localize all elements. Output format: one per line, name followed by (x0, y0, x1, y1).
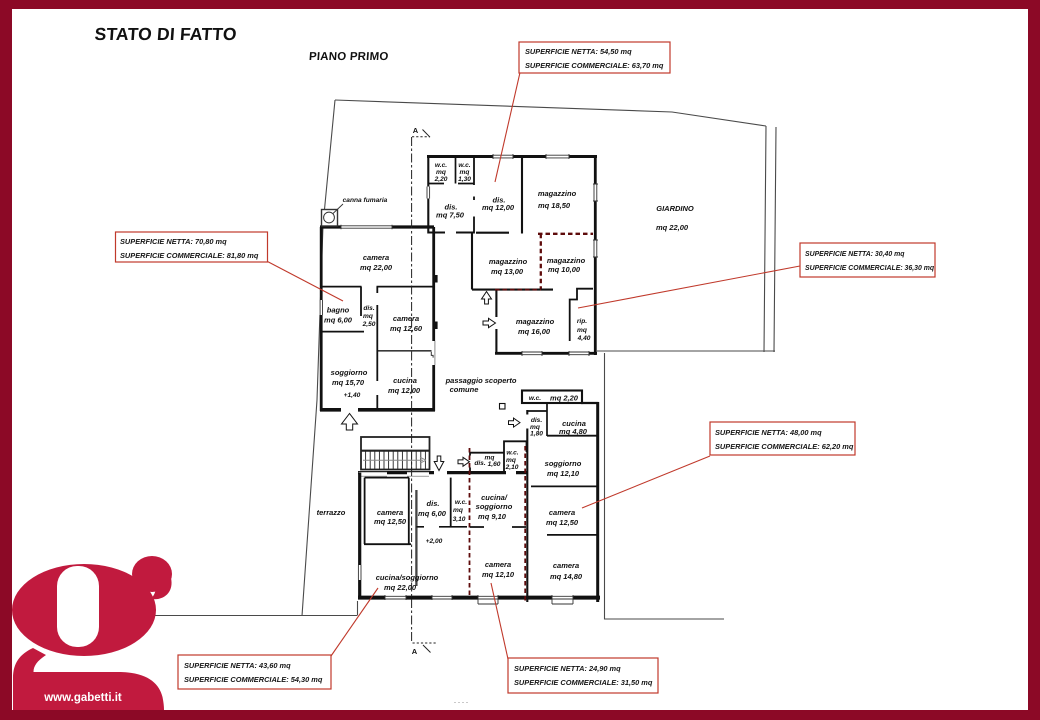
svg-text:mq 6,00: mq 6,00 (324, 316, 353, 325)
svg-text:mq 12,00: mq 12,00 (388, 386, 421, 395)
svg-text:www.gabetti.it: www.gabetti.it (43, 692, 122, 704)
svg-text:+1,40: +1,40 (344, 392, 361, 399)
svg-text:camera: camera (553, 561, 579, 570)
svg-text:mq: mq (577, 327, 587, 334)
svg-text:mq: mq (436, 169, 446, 176)
svg-text:w.c.: w.c. (506, 450, 518, 457)
svg-text:camera: camera (377, 508, 403, 517)
svg-text:2,50: 2,50 (362, 321, 376, 328)
svg-text:mq 16,00: mq 16,00 (518, 327, 551, 336)
svg-text:mq 12,60: mq 12,60 (390, 324, 423, 333)
svg-text:A: A (413, 126, 419, 135)
svg-text:soggiorno: soggiorno (331, 368, 368, 377)
svg-text:2,10: 2,10 (505, 464, 519, 471)
svg-text:2,20: 2,20 (434, 176, 448, 183)
svg-text:mq 4,80: mq 4,80 (559, 427, 588, 436)
svg-text:cucina: cucina (393, 376, 417, 385)
svg-text:mq 22,00: mq 22,00 (360, 263, 393, 272)
svg-text:terrazzo: terrazzo (317, 508, 346, 517)
svg-text:cucina/: cucina/ (481, 493, 508, 502)
svg-text:SUPERFICIE NETTA: 30,40 mq: SUPERFICIE NETTA: 30,40 mq (805, 251, 905, 258)
svg-text:GIARDINO: GIARDINO (656, 204, 694, 213)
svg-text:mq: mq (506, 457, 516, 464)
svg-text:w.c.: w.c. (458, 162, 470, 169)
svg-text:mq 12,10: mq 12,10 (547, 469, 580, 478)
svg-text:SUPERFICIE COMMERCIALE: 63,70: SUPERFICIE COMMERCIALE: 63,70 mq (525, 61, 664, 70)
svg-text:4,40: 4,40 (577, 335, 591, 342)
svg-text:1,30: 1,30 (458, 176, 471, 183)
svg-text:mq 12,50: mq 12,50 (374, 517, 407, 526)
svg-text:SUPERFICIE NETTA: 24,90 mq: SUPERFICIE NETTA: 24,90 mq (514, 664, 621, 673)
svg-text:mq: mq (460, 169, 470, 176)
svg-text:w.c.: w.c. (455, 499, 467, 506)
svg-text:camera: camera (363, 253, 389, 262)
svg-text:SUPERFICIE COMMERCIALE: 36,30: SUPERFICIE COMMERCIALE: 36,30 mq (805, 265, 935, 272)
svg-text:bagno: bagno (327, 306, 350, 315)
svg-text:1,60: 1,60 (488, 461, 501, 468)
svg-text:SUPERFICIE COMMERCIALE: 31,50: SUPERFICIE COMMERCIALE: 31,50 mq (514, 678, 653, 687)
svg-text:magazzino: magazzino (489, 257, 528, 266)
svg-text:soggiorno: soggiorno (545, 459, 582, 468)
svg-text:+2,00: +2,00 (426, 538, 443, 545)
svg-text:SUPERFICIE NETTA: 43,60 mq: SUPERFICIE NETTA: 43,60 mq (184, 661, 291, 670)
svg-text:dis.: dis. (427, 499, 440, 508)
svg-text:SUPERFICIE NETTA: 70,80 mq: SUPERFICIE NETTA: 70,80 mq (120, 237, 227, 246)
svg-text:canna fumaria: canna fumaria (343, 197, 388, 204)
svg-text:mq 15,70: mq 15,70 (332, 378, 365, 387)
svg-text:dis.: dis. (363, 305, 375, 312)
svg-text:mq 2,20: mq 2,20 (550, 394, 579, 403)
svg-text:magazzino: magazzino (547, 256, 586, 265)
svg-text:passaggio scoperto: passaggio scoperto (445, 376, 517, 385)
svg-text:mq 10,00: mq 10,00 (548, 265, 581, 274)
svg-text:magazzino: magazzino (516, 317, 555, 326)
svg-text:mq 6,00: mq 6,00 (418, 509, 447, 518)
svg-text:camera: camera (549, 508, 575, 517)
svg-text:mq: mq (363, 313, 373, 320)
svg-text:mq 14,80: mq 14,80 (550, 572, 583, 581)
svg-text:soggiorno: soggiorno (476, 502, 513, 511)
svg-text:mq 12,10: mq 12,10 (482, 570, 515, 579)
svg-text:SUPERFICIE COMMERCIALE: 62,20: SUPERFICIE COMMERCIALE: 62,20 mq (715, 442, 854, 451)
svg-text:3,10: 3,10 (453, 516, 466, 523)
svg-text:mq: mq (453, 507, 463, 514)
svg-text:mq 9,10: mq 9,10 (478, 512, 507, 521)
svg-text:mq 13,00: mq 13,00 (491, 267, 524, 276)
svg-text:1,80: 1,80 (530, 431, 543, 438)
svg-text:mq 7,50: mq 7,50 (436, 211, 465, 220)
svg-text:SUPERFICIE NETTA: 54,50 mq: SUPERFICIE NETTA: 54,50 mq (525, 47, 632, 56)
svg-text:STATO DI FATTO: STATO DI FATTO (94, 24, 238, 44)
svg-text:comune: comune (450, 385, 479, 394)
svg-text:PIANO PRIMO: PIANO PRIMO (309, 51, 389, 63)
svg-text:mq 12,50: mq 12,50 (546, 518, 579, 527)
svg-text:mq 12,00: mq 12,00 (482, 203, 515, 212)
svg-text:w.c.: w.c. (529, 395, 541, 402)
svg-text:SUPERFICIE NETTA: 48,00 mq: SUPERFICIE NETTA: 48,00 mq (715, 428, 822, 437)
svg-text:rip.: rip. (577, 318, 587, 325)
svg-text:cucina/soggiorno: cucina/soggiorno (376, 573, 439, 582)
svg-text:camera: camera (485, 560, 511, 569)
svg-text:SUPERFICIE COMMERCIALE: 54,30: SUPERFICIE COMMERCIALE: 54,30 mq (184, 675, 323, 684)
svg-text:dis.: dis. (531, 417, 543, 424)
svg-text:mq 18,50: mq 18,50 (538, 201, 571, 210)
svg-text:A: A (412, 647, 418, 656)
svg-text:mq 22,00: mq 22,00 (656, 223, 689, 232)
svg-text:w.c.: w.c. (435, 162, 447, 169)
svg-text:magazzino: magazzino (538, 189, 577, 198)
svg-text:camera: camera (393, 314, 419, 323)
svg-text:SUPERFICIE COMMERCIALE: 81,80: SUPERFICIE COMMERCIALE: 81,80 mq (120, 251, 259, 260)
